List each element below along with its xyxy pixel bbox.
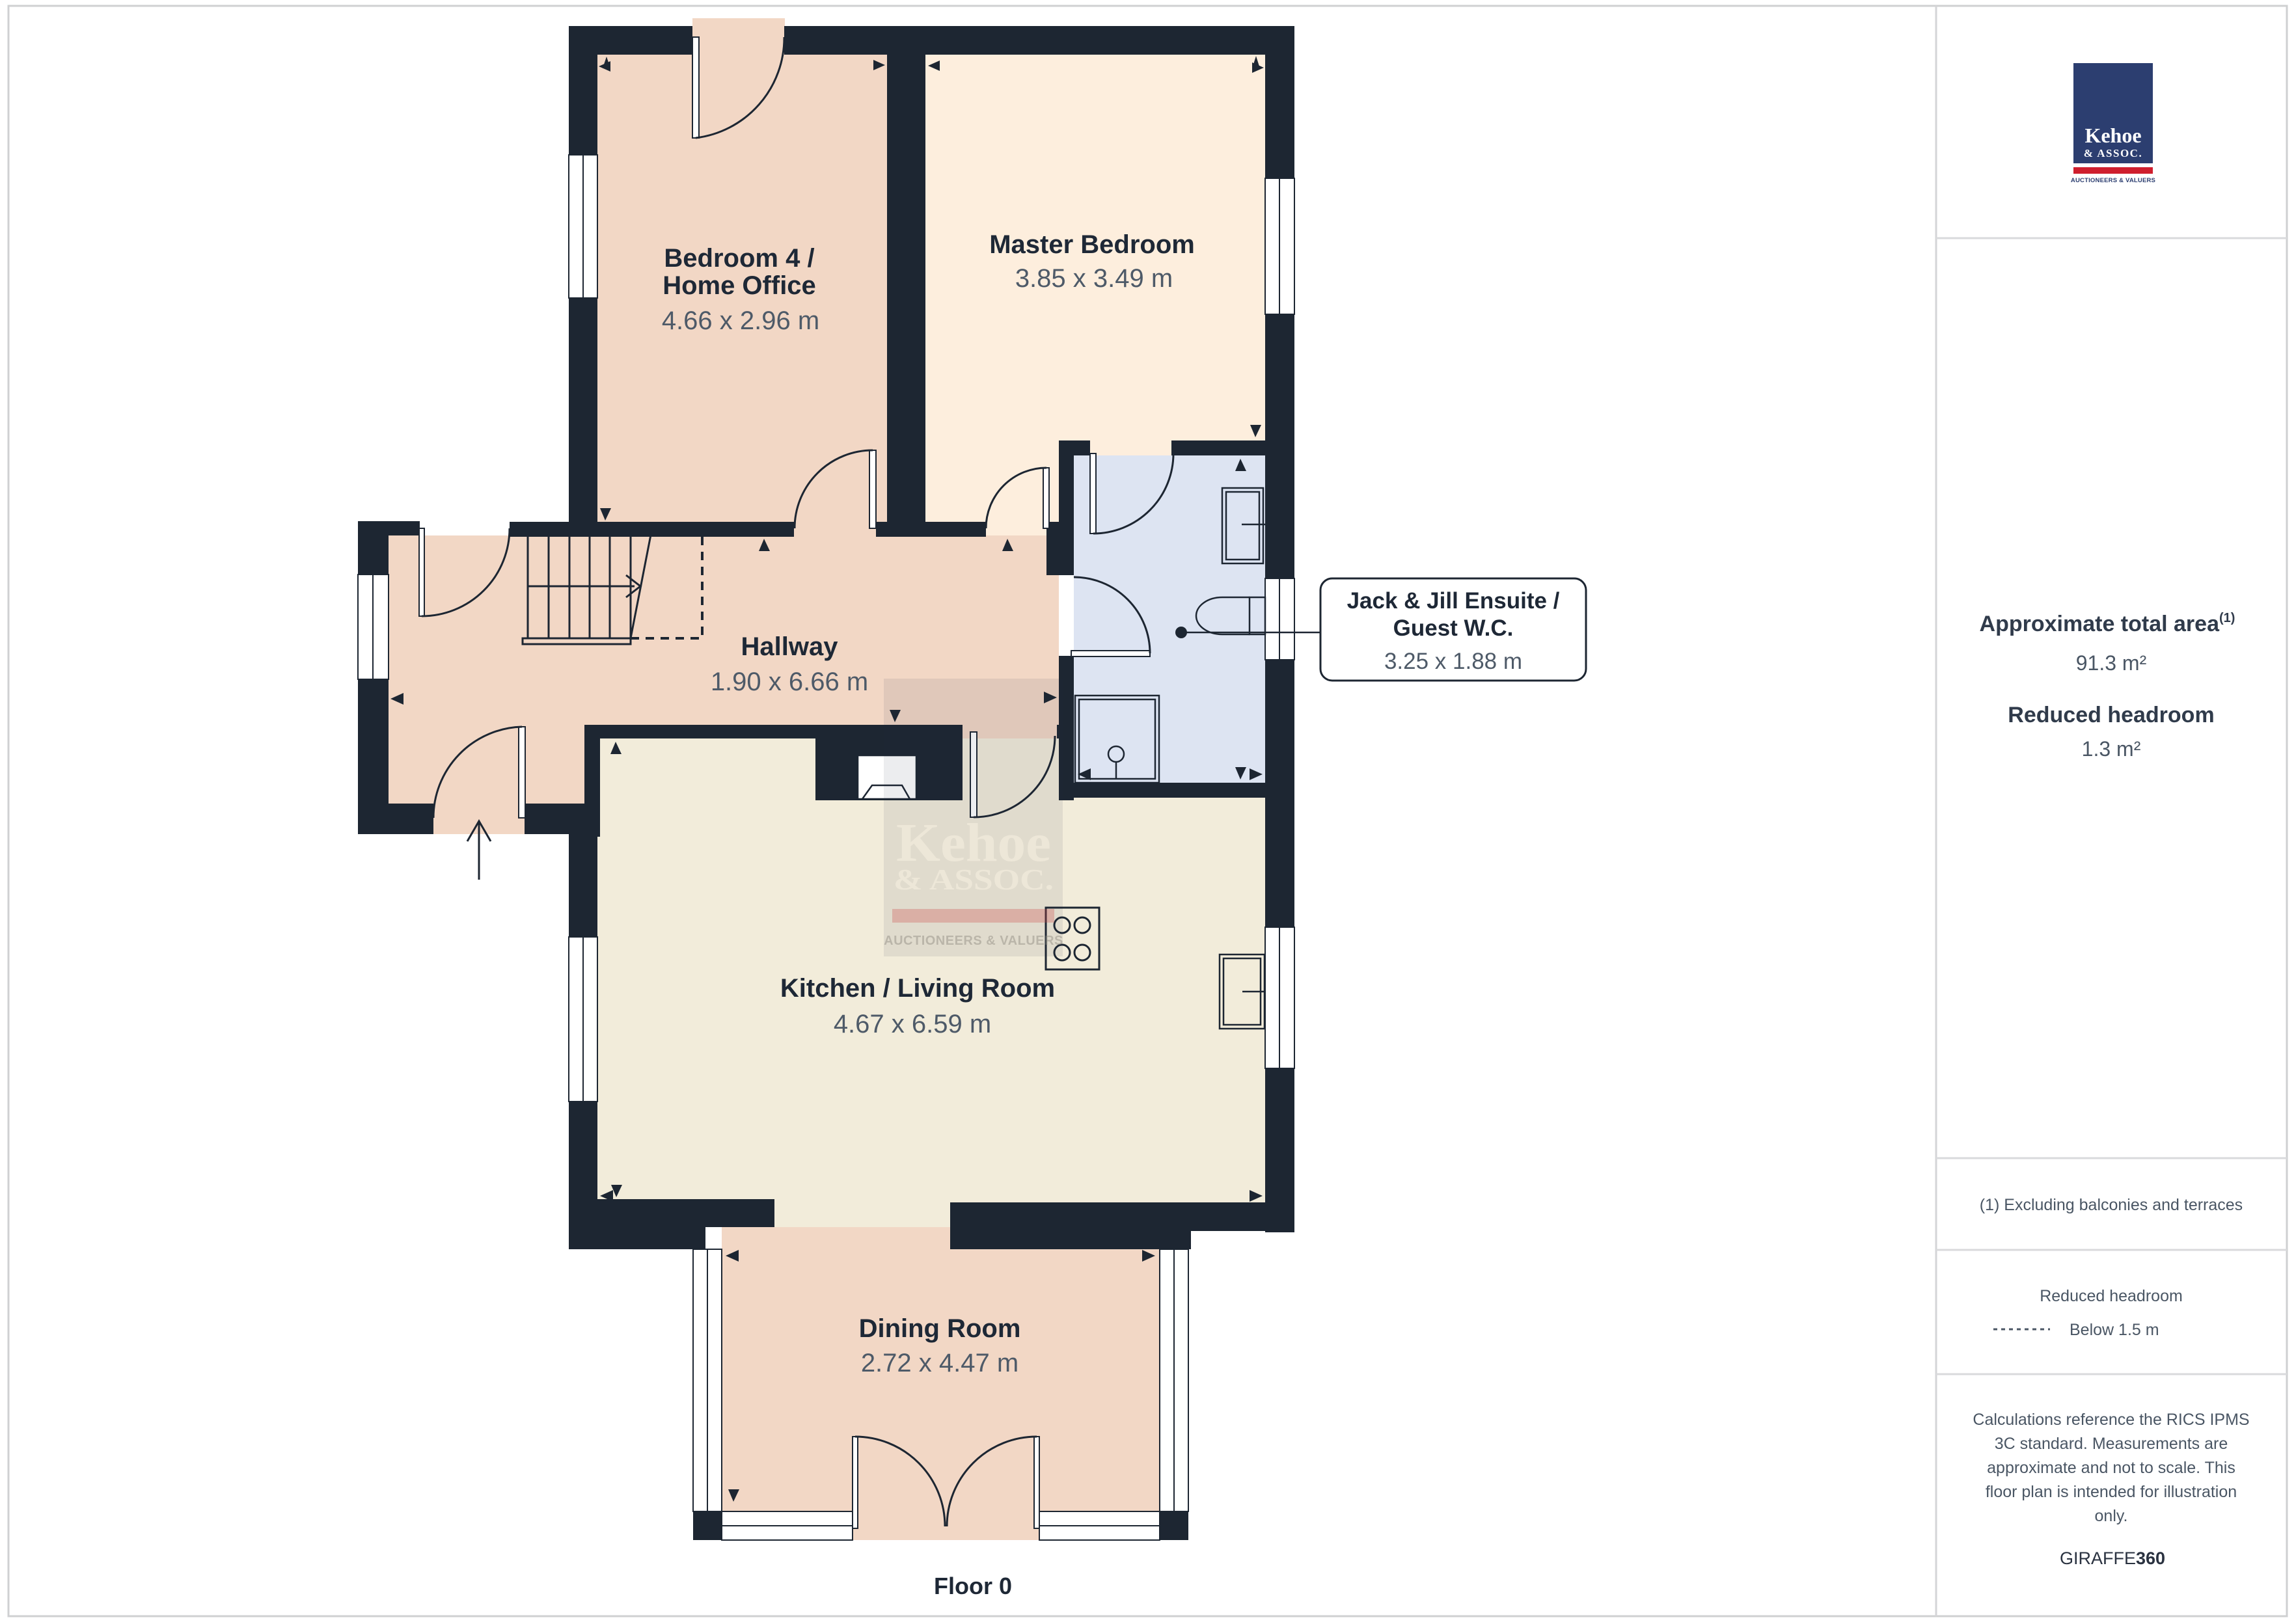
svg-text:floor plan is intended for ill: floor plan is intended for illustration <box>1986 1483 2237 1501</box>
svg-text:91.3 m²: 91.3 m² <box>2076 651 2147 675</box>
svg-text:Hallway: Hallway <box>741 632 839 661</box>
svg-text:2.72 x 4.47 m: 2.72 x 4.47 m <box>861 1349 1018 1377</box>
svg-text:1.3 m²: 1.3 m² <box>2082 737 2141 761</box>
svg-text:Below 1.5 m: Below 1.5 m <box>2070 1321 2159 1339</box>
svg-text:Calculations reference the RIC: Calculations reference the RICS IPMS <box>1973 1411 2249 1429</box>
svg-text:Reduced headroom: Reduced headroom <box>2008 703 2214 727</box>
svg-text:Master Bedroom: Master Bedroom <box>989 230 1195 259</box>
svg-text:Home Office: Home Office <box>663 271 816 300</box>
svg-text:Kehoe: Kehoe <box>2084 124 2141 147</box>
svg-text:4.66 x 2.96 m: 4.66 x 2.96 m <box>662 306 819 335</box>
svg-text:Approximate total area(1): Approximate total area(1) <box>1980 611 2235 636</box>
svg-text:3.85 x 3.49 m: 3.85 x 3.49 m <box>1015 264 1173 293</box>
svg-text:AUCTIONEERS & VALUERS: AUCTIONEERS & VALUERS <box>2071 177 2155 184</box>
svg-text:AUCTIONEERS & VALUERS: AUCTIONEERS & VALUERS <box>884 934 1063 948</box>
svg-text:Reduced headroom: Reduced headroom <box>2040 1287 2183 1305</box>
svg-text:4.67 x 6.59 m: 4.67 x 6.59 m <box>834 1010 991 1038</box>
svg-text:GIRAFFE360: GIRAFFE360 <box>2060 1549 2165 1568</box>
svg-text:Guest W.C.: Guest W.C. <box>1393 616 1514 641</box>
svg-text:Floor 0: Floor 0 <box>934 1573 1012 1599</box>
svg-text:Bedroom 4 /: Bedroom 4 / <box>664 244 814 273</box>
svg-text:only.: only. <box>2095 1507 2128 1525</box>
svg-text:Dining Room: Dining Room <box>859 1314 1021 1343</box>
svg-text:Jack & Jill Ensuite /: Jack & Jill Ensuite / <box>1347 588 1560 614</box>
svg-text:1.90 x 6.66 m: 1.90 x 6.66 m <box>711 668 868 696</box>
svg-text:& ASSOC.: & ASSOC. <box>2084 147 2142 159</box>
svg-text:approximate and not to scale.: approximate and not to scale. This <box>1987 1459 2235 1477</box>
svg-text:3C standard. Measurements are: 3C standard. Measurements are <box>1995 1435 2228 1453</box>
svg-text:& ASSOC.: & ASSOC. <box>894 863 1054 896</box>
svg-text:3.25 x 1.88 m: 3.25 x 1.88 m <box>1384 649 1522 674</box>
svg-text:Kitchen / Living Room: Kitchen / Living Room <box>780 974 1055 1003</box>
svg-text:(1) Excluding balconies and te: (1) Excluding balconies and terraces <box>1980 1196 2243 1214</box>
